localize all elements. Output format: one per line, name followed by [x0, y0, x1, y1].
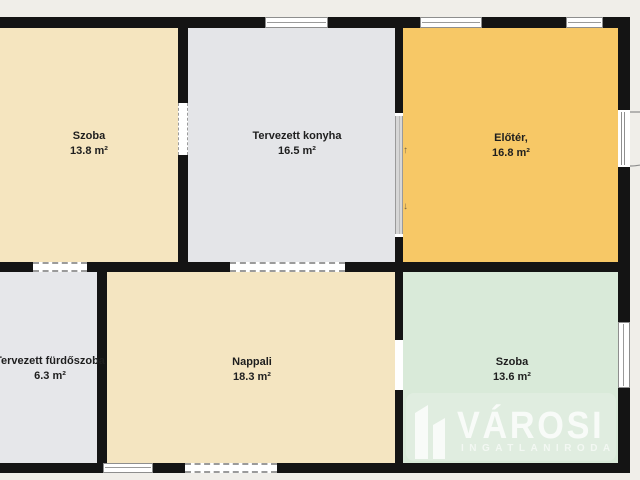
label-eloter: Előtér, 16.8 m² — [492, 131, 530, 161]
room-area: 16.5 m² — [252, 144, 341, 159]
room-name: Előtér, — [492, 131, 530, 146]
room-area: 16.8 m² — [492, 146, 530, 161]
watermark-subtitle: INGATLANIRODA — [461, 443, 616, 454]
room-area: 13.6 m² — [493, 370, 531, 385]
label-szoba-top-left: Szoba 13.8 m² — [70, 129, 108, 159]
window-szoba-right-icon — [618, 322, 630, 388]
window-konyha-top-icon — [265, 17, 328, 28]
room-name: Tervezett fürdőszoba — [0, 354, 105, 369]
wall-bottom — [0, 463, 630, 473]
room-name: Nappali — [232, 355, 272, 370]
label-szoba-bottom-right: Szoba 13.6 m² — [493, 355, 531, 385]
room-area: 13.8 m² — [70, 144, 108, 159]
opening-szoba-furdoszoba-icon — [33, 262, 87, 272]
door-nappali-szoba-icon — [395, 340, 403, 390]
label-furdoszoba: Tervezett fürdőszoba 6.3 m² — [0, 354, 105, 384]
label-nappali: Nappali 18.3 m² — [232, 355, 272, 385]
door-szoba-konyha-icon — [178, 103, 188, 155]
opening-nappali-bottom-icon — [185, 463, 277, 473]
room-area: 6.3 m² — [0, 369, 105, 384]
window-eloter-top-right-icon — [566, 17, 603, 28]
floor-plan: ↑ ↓ Szoba 13.8 m² Tervezett konyha 16.5 … — [0, 0, 640, 480]
room-name: Szoba — [493, 355, 531, 370]
entrance-door-icon — [618, 110, 630, 167]
opening-konyha-nappali-icon — [230, 262, 345, 272]
window-eloter-top-left-icon — [420, 17, 482, 28]
room-name: Tervezett konyha — [252, 129, 341, 144]
window-nappali-bottom-icon — [103, 463, 153, 473]
label-konyha: Tervezett konyha 16.5 m² — [252, 129, 341, 159]
room-name: Szoba — [70, 129, 108, 144]
watermark-brand: VÁROSI — [457, 405, 604, 448]
slide-arrow-up-icon: ↑ — [403, 146, 408, 156]
wall-right — [618, 17, 630, 473]
sliding-door-konyha-eloter-icon — [395, 113, 403, 237]
slide-arrow-down-icon: ↓ — [403, 202, 408, 212]
room-area: 18.3 m² — [232, 370, 272, 385]
